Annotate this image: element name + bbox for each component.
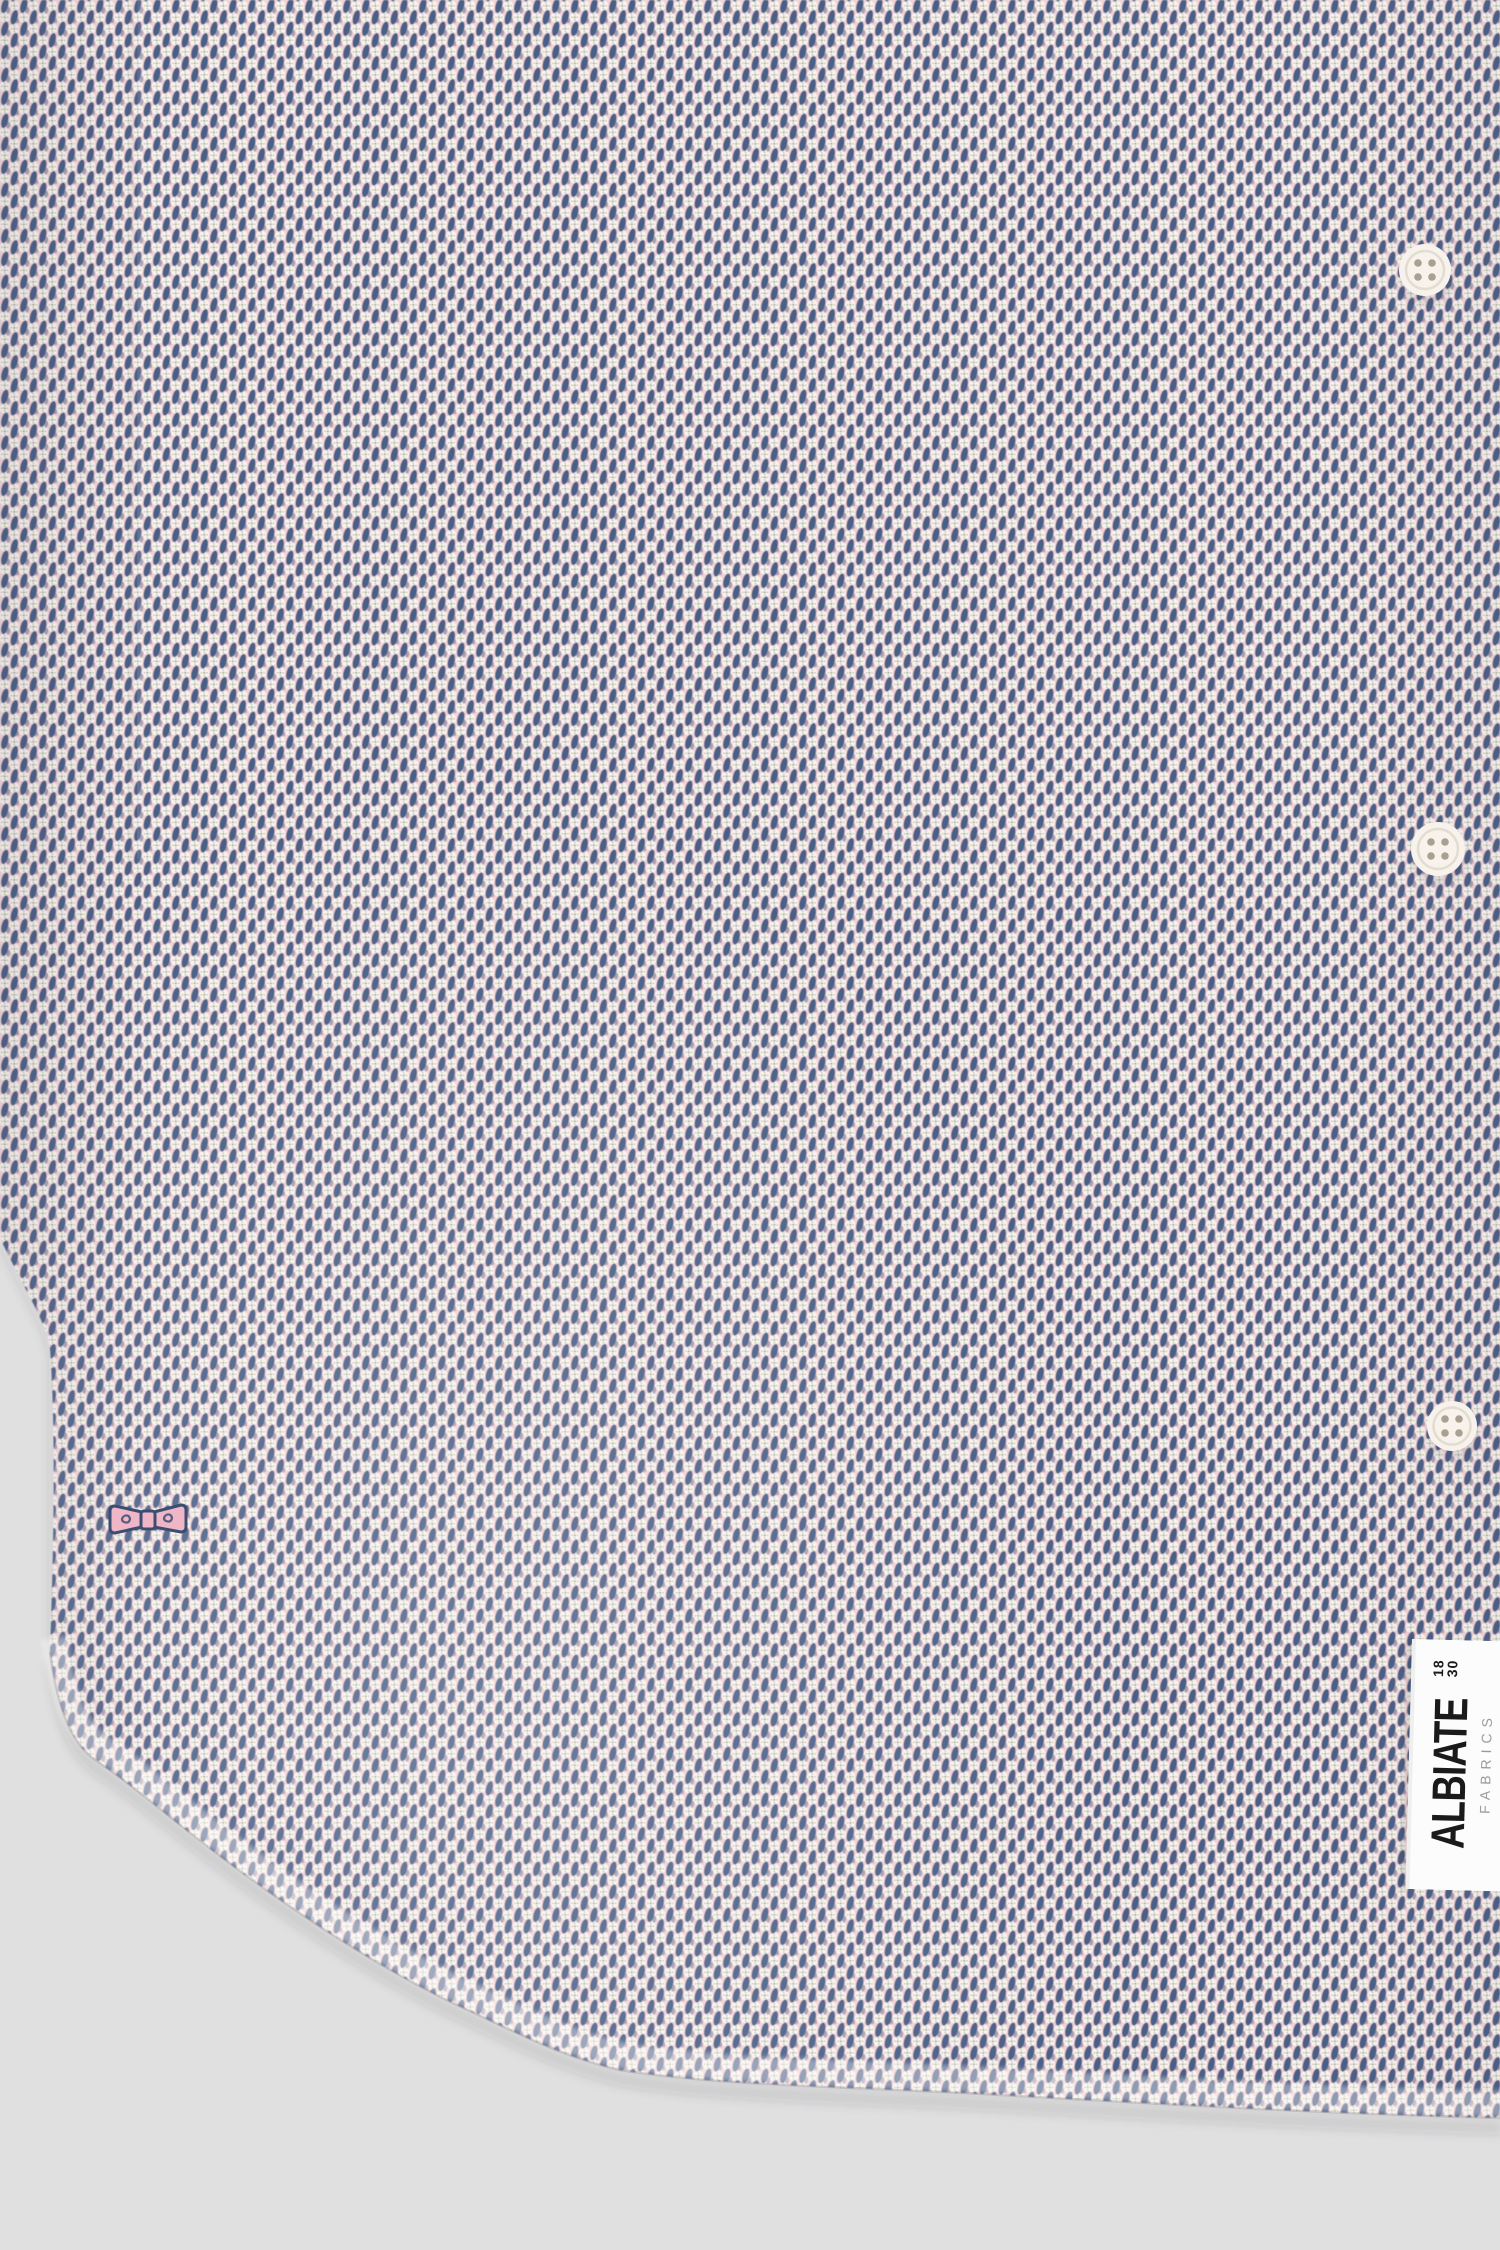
button-1	[1399, 244, 1453, 306]
brand-label-tag	[1399, 1636, 1500, 1895]
bow-knot	[141, 1511, 155, 1529]
bow-left-wing	[110, 1506, 142, 1533]
photo-canvas	[0, 0, 1500, 2250]
button-3	[1427, 1401, 1479, 1461]
fabric-hem-light	[0, 0, 1500, 2118]
product-photo: ALBIATE 18 30 FABRICS	[0, 0, 1500, 2250]
label-body	[1405, 1639, 1500, 1892]
fabric-crease-shadow	[130, 0, 133, 870]
button-2	[1411, 822, 1467, 886]
